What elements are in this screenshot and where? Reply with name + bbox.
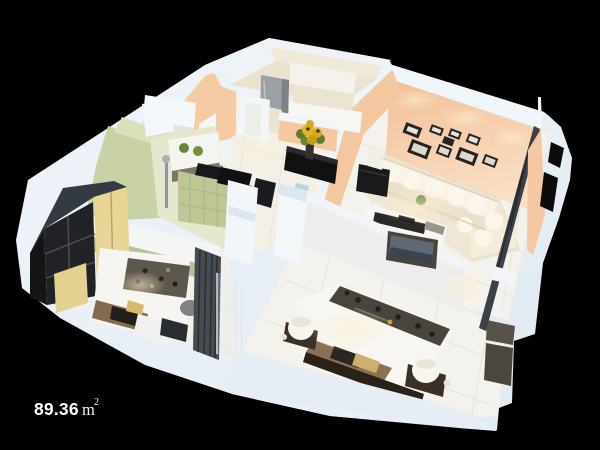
svg-text:89.36: 89.36: [34, 399, 79, 419]
svg-text:2: 2: [94, 397, 99, 408]
